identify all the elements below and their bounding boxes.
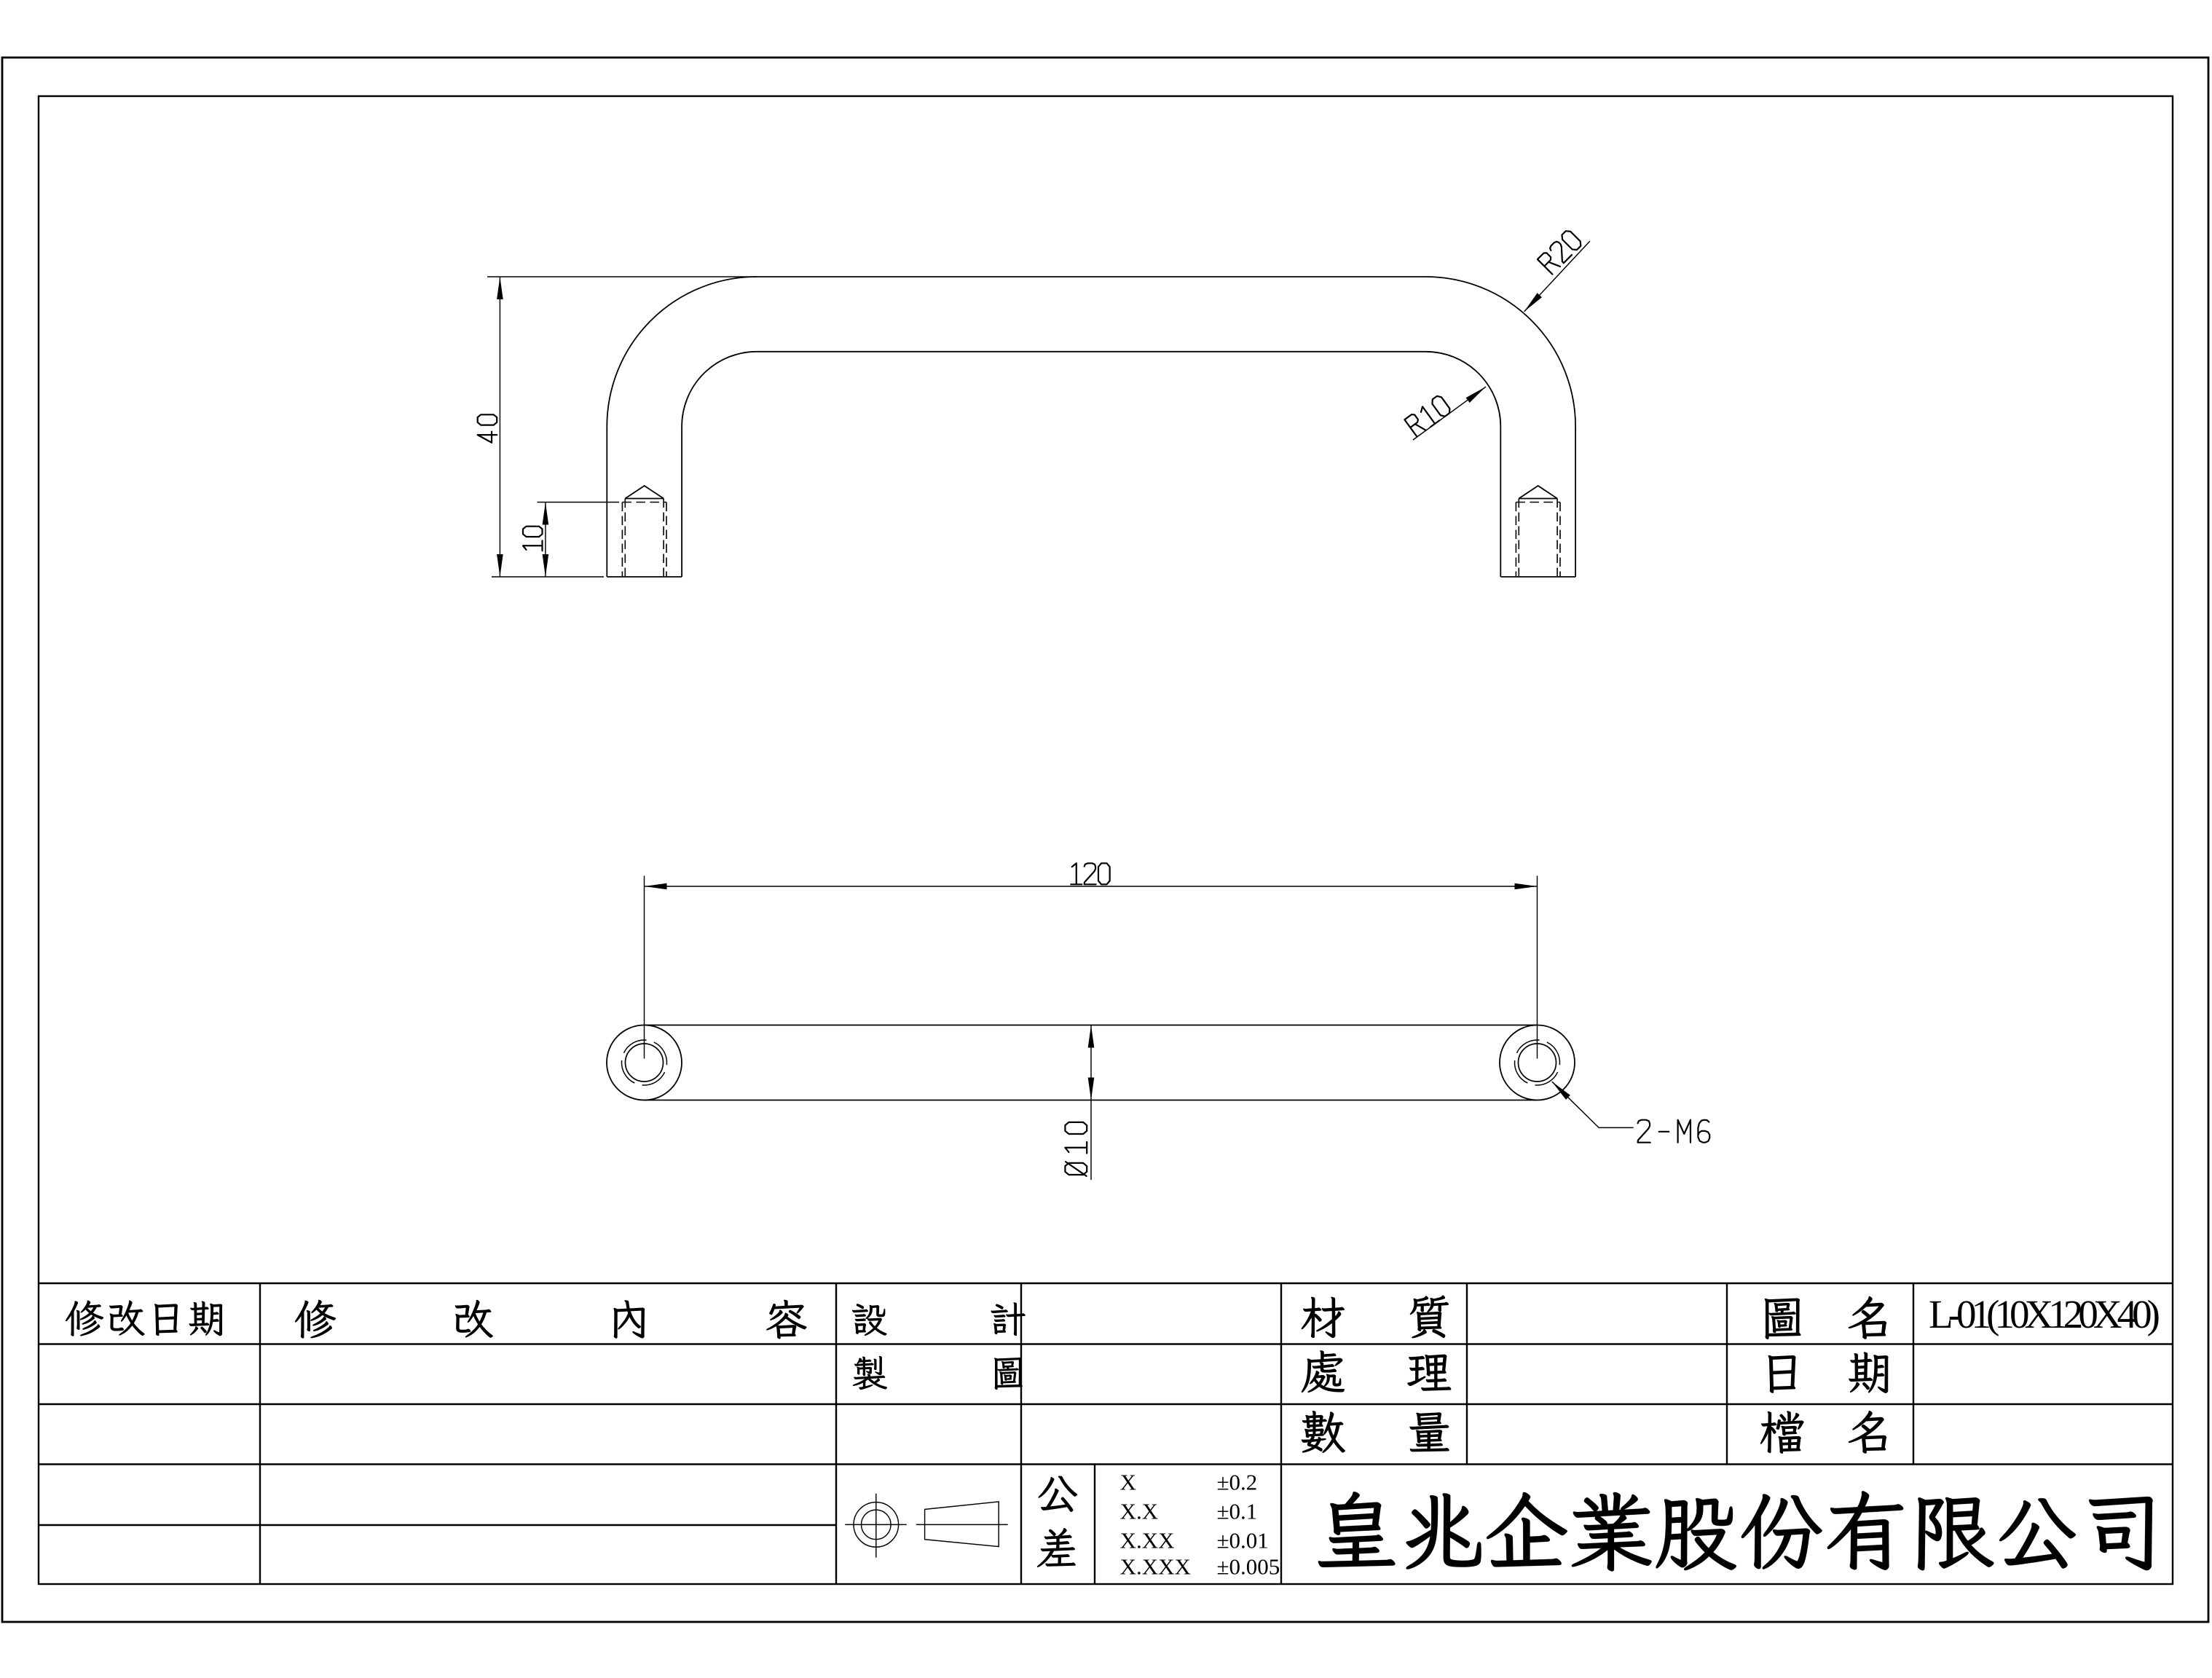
svg-text:±0.1: ±0.1 bbox=[1217, 1498, 1258, 1524]
svg-text:±0.005: ±0.005 bbox=[1217, 1553, 1280, 1579]
svg-text:X.XX: X.XX bbox=[1120, 1527, 1175, 1553]
svg-text:X.X: X.X bbox=[1120, 1498, 1159, 1524]
svg-text:X.XXX: X.XXX bbox=[1120, 1553, 1191, 1579]
svg-text:±0.2: ±0.2 bbox=[1217, 1470, 1258, 1495]
svg-text:±0.01: ±0.01 bbox=[1217, 1527, 1269, 1553]
svg-text:L-01(10X120X40): L-01(10X120X40) bbox=[1929, 1292, 2160, 1336]
svg-text:X: X bbox=[1120, 1470, 1136, 1495]
